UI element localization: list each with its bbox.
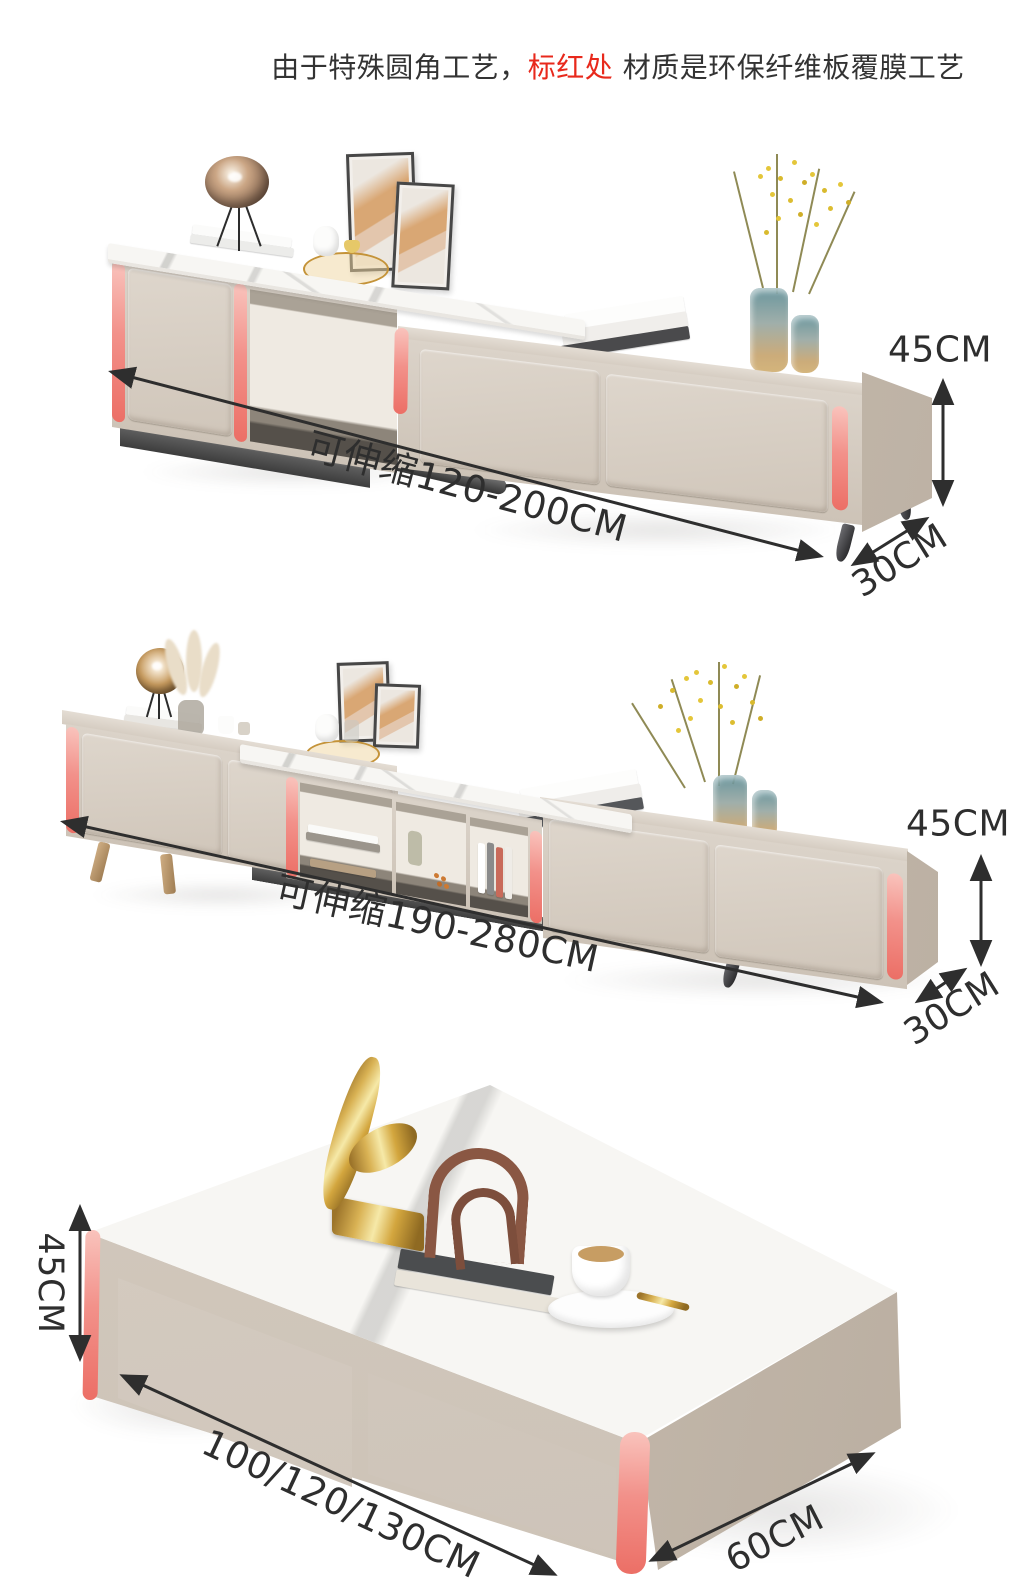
tv1-height-label: 45CM — [888, 330, 992, 371]
product-detail-page: 由于特殊圆角工艺，标红处 材质是环保纤维板覆膜工艺 — [0, 0, 1024, 1586]
table-height-label: 45CM — [30, 1232, 70, 1333]
dimension-arrows — [0, 0, 1024, 1586]
table-length-arrow — [123, 1376, 554, 1574]
tv2-height-label: 45CM — [906, 804, 1010, 845]
